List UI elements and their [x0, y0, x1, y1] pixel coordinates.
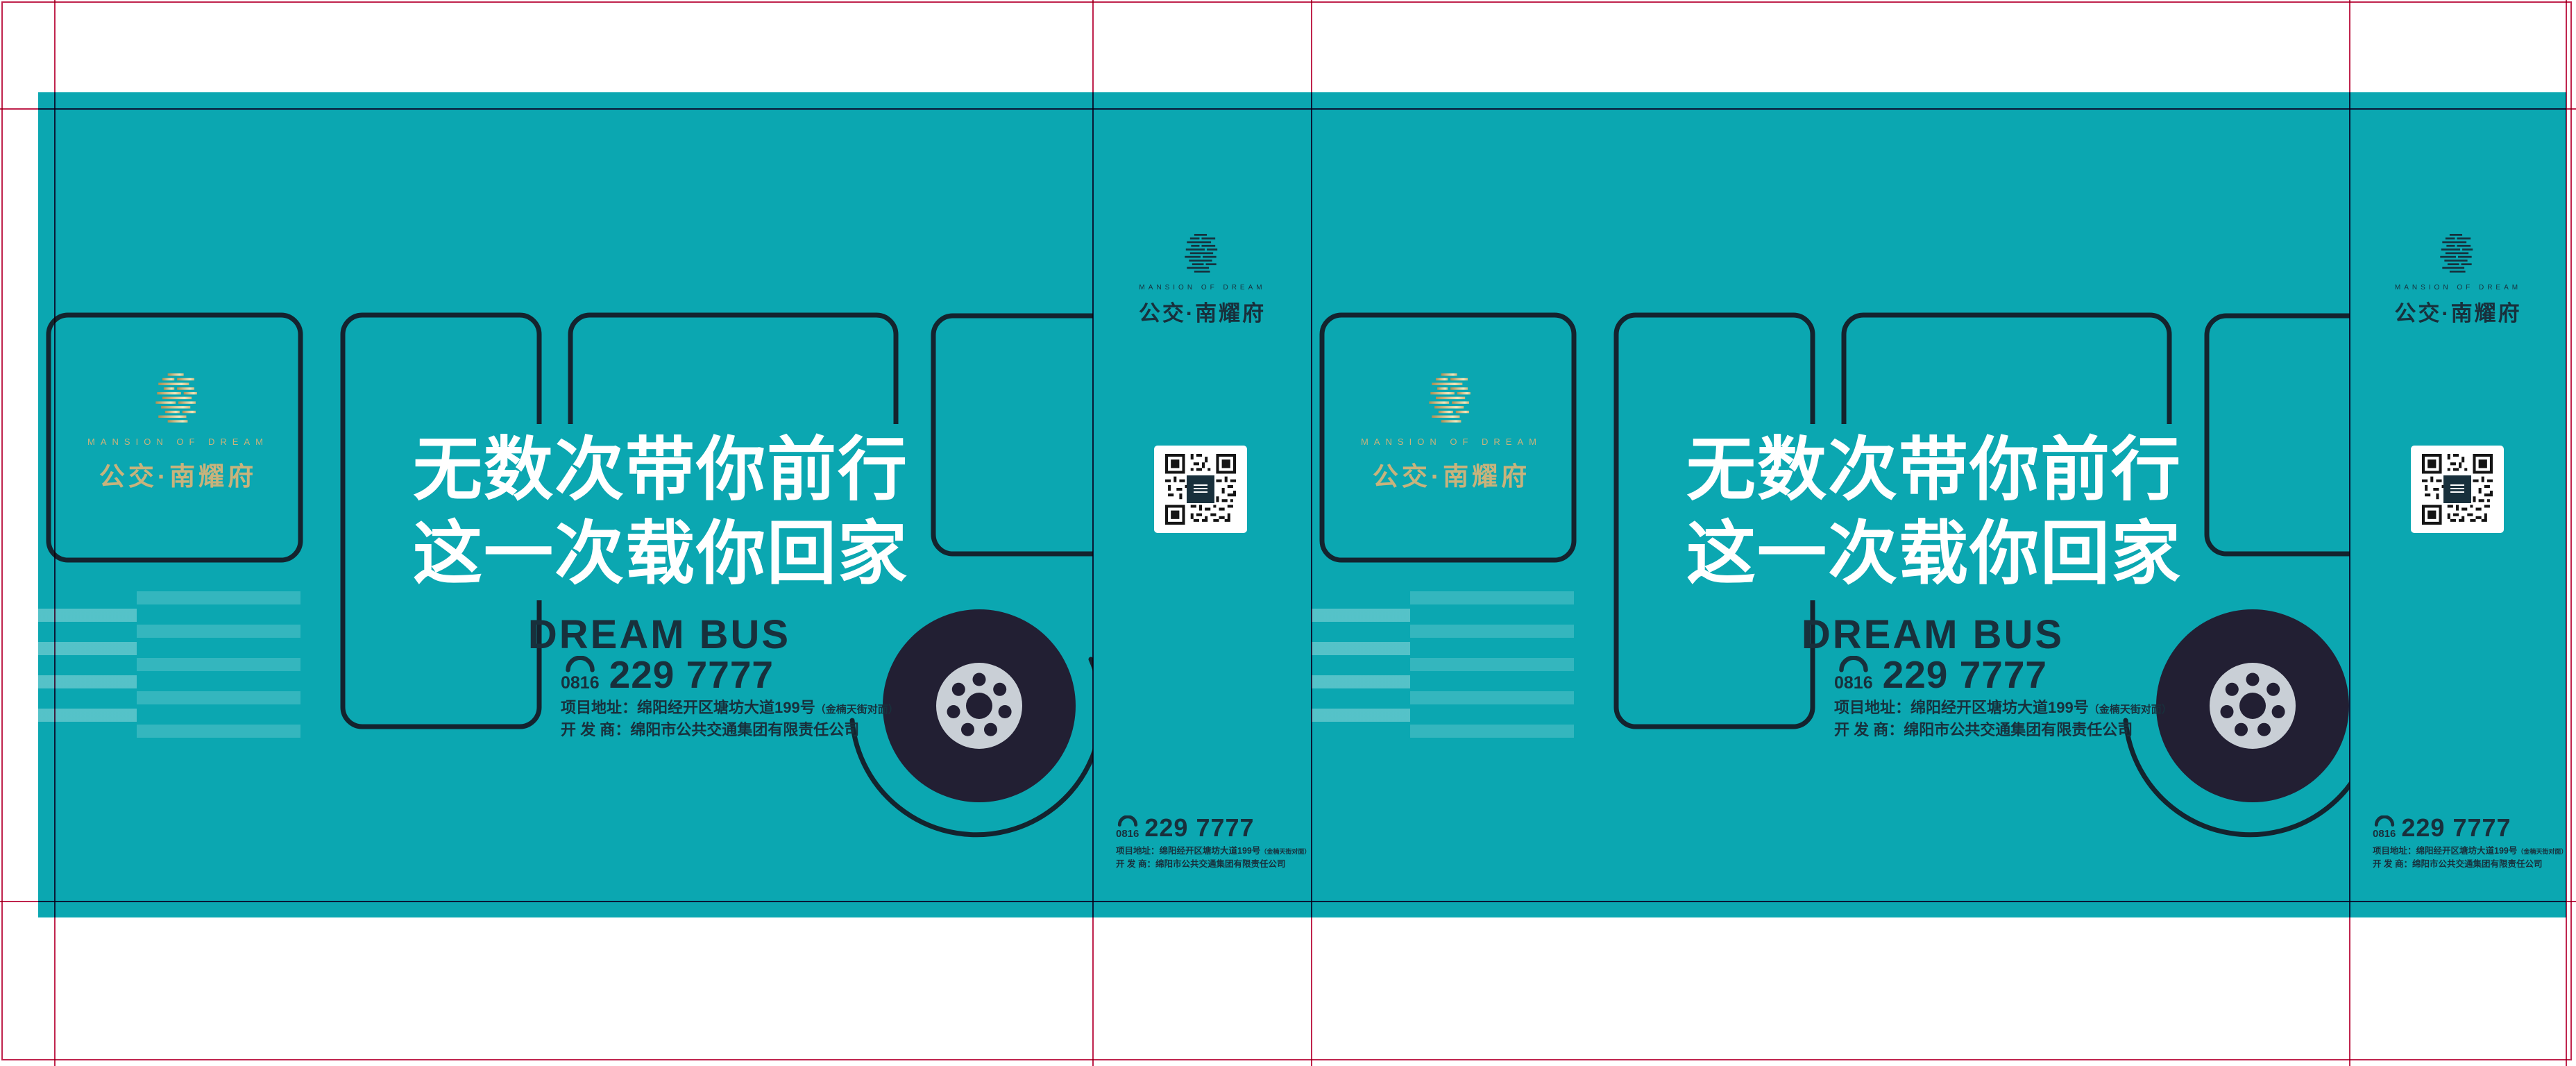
artboard-border	[1, 1, 2572, 1060]
artboard: MANSION OF DREAM 公交·南耀府 无数次带你前行 这一次载你回家 …	[0, 0, 2576, 1066]
